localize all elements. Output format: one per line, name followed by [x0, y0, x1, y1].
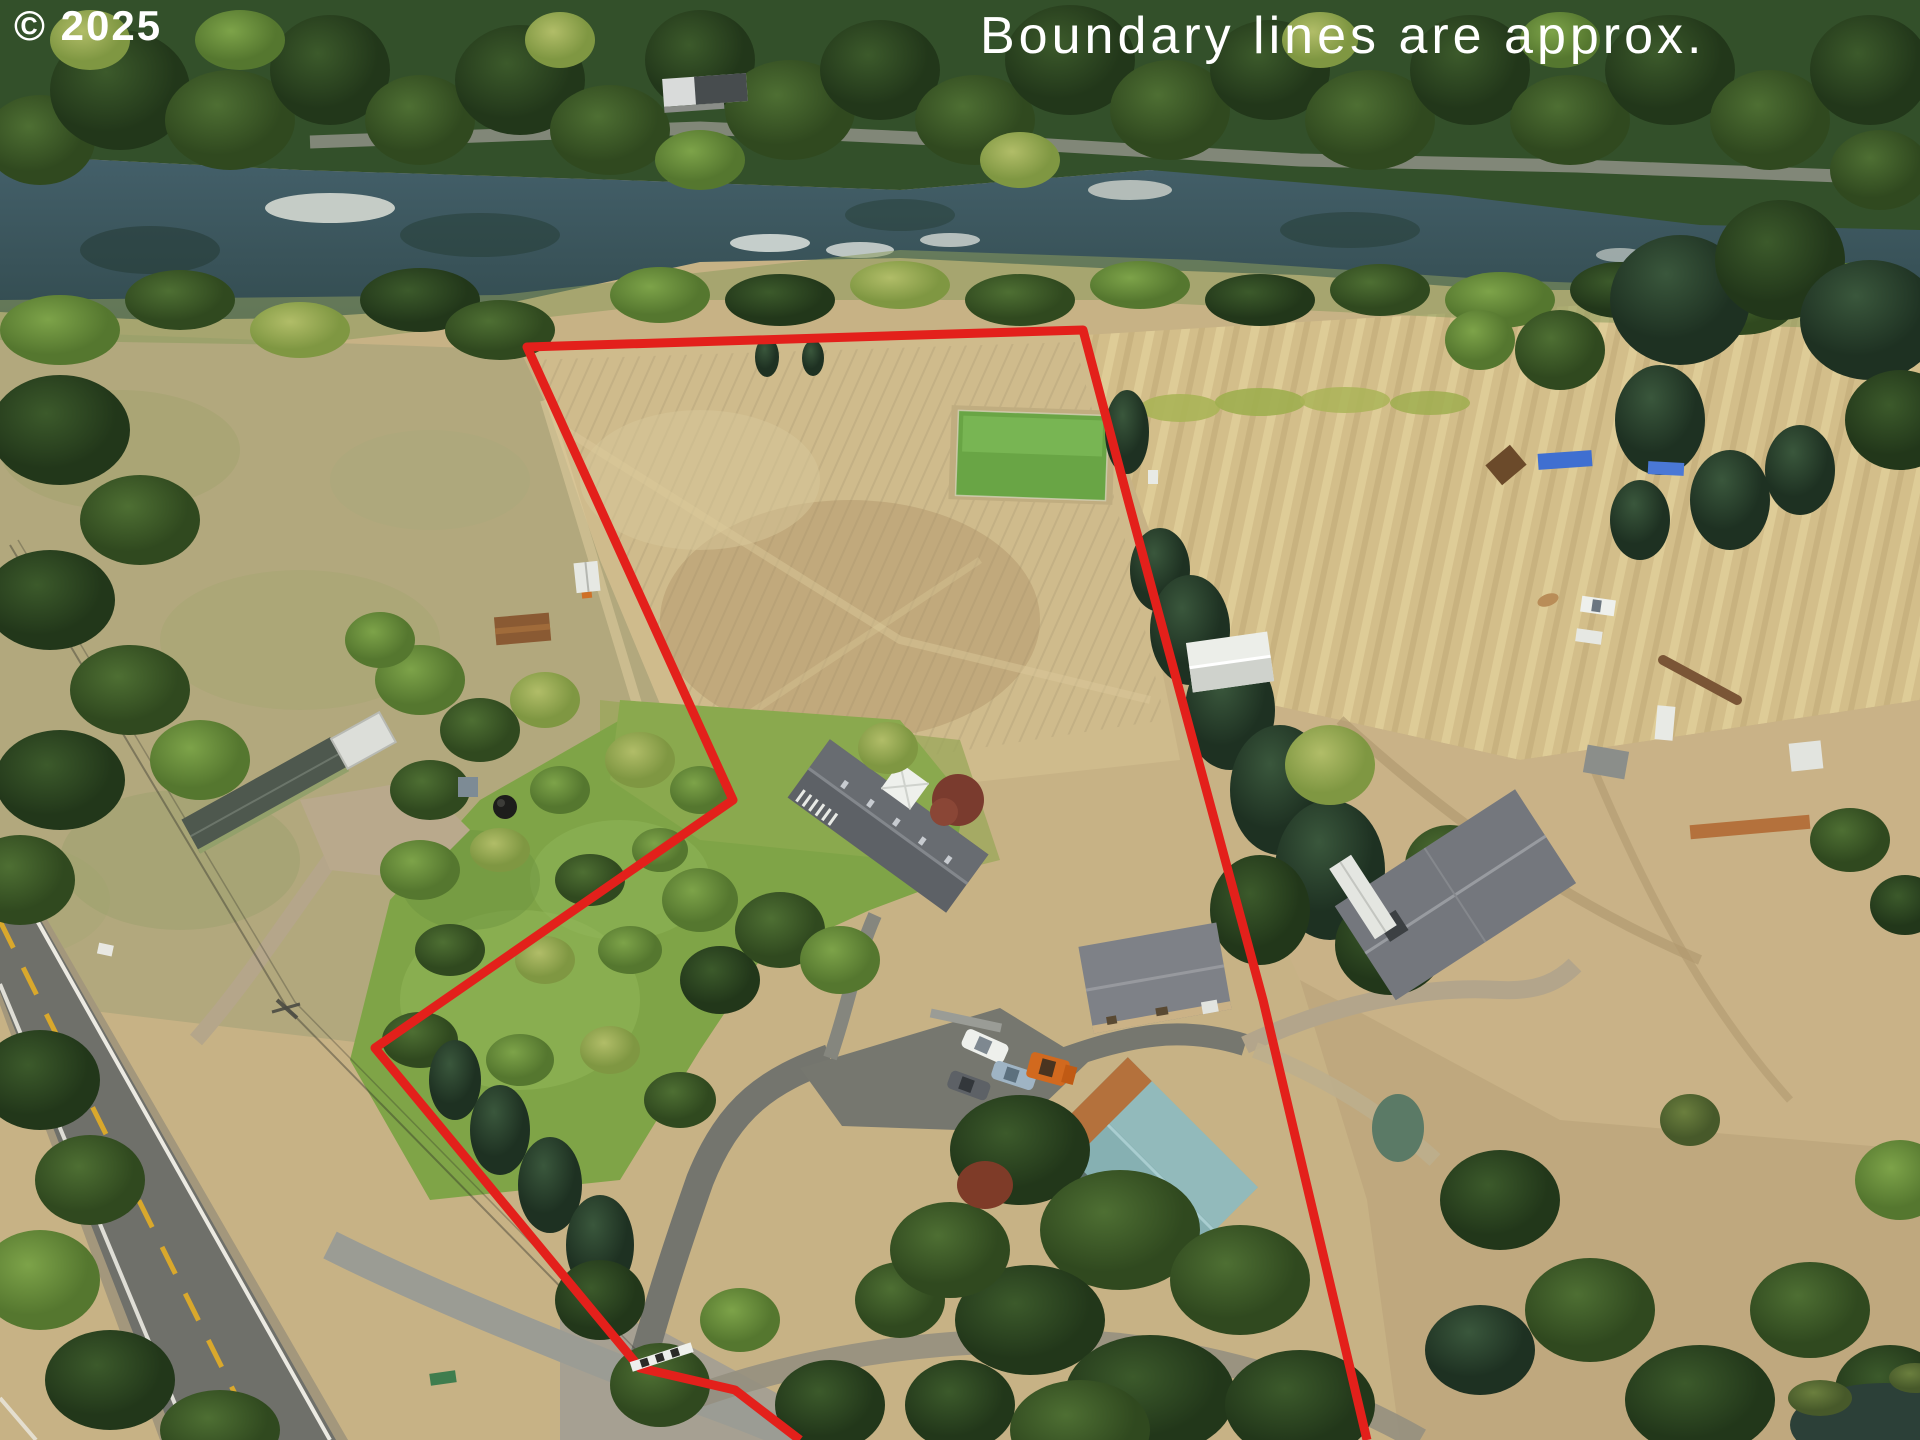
copyright-watermark: © 2025	[14, 2, 162, 50]
small-rv	[1655, 705, 1676, 740]
blue-box	[458, 777, 478, 797]
blue-tarp-2	[1648, 461, 1685, 476]
gravel-bar	[265, 193, 395, 223]
red-maple-blob	[930, 798, 958, 826]
red-bush	[957, 1161, 1013, 1209]
garden-plot	[948, 405, 1115, 505]
tank-highlight	[497, 799, 505, 807]
photo-scene	[0, 0, 1920, 1440]
boundary-disclaimer: Boundary lines are approx.	[980, 6, 1706, 66]
white-post	[1148, 470, 1158, 484]
brown-shed	[494, 613, 551, 646]
yellow-tree	[858, 722, 918, 774]
water-tank	[493, 795, 517, 819]
far-right-house	[1789, 740, 1824, 771]
aerial-photo: © 2025 Boundary lines are approx.	[0, 0, 1920, 1440]
